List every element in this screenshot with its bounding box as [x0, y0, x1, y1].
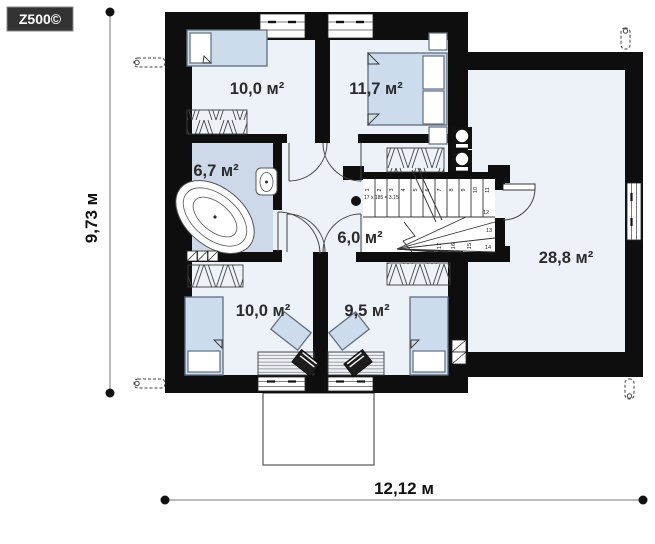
bed-single-bottom-left: [185, 297, 223, 375]
wardrobe-top-left: [187, 110, 247, 134]
stair-step-number: 16: [451, 243, 457, 249]
roof-window-icon: [134, 379, 165, 388]
stair-step-number: 11: [485, 187, 491, 193]
width-dimension-label: 12,12 м: [374, 479, 434, 498]
floor-plan-drawing: 17 x 185 = 3.15 1 2 3 4 5 6 7 8 9 10 11 …: [0, 0, 655, 544]
vent-grid-icon: [187, 251, 218, 261]
stair-step-number: 4: [401, 188, 407, 191]
stair-start-dot: [351, 196, 361, 206]
stair-step-number: 10: [473, 187, 479, 193]
dimension-width: 12,12 м: [161, 479, 648, 505]
stair-step-number: 14: [485, 245, 491, 251]
partition-top-rooms: [315, 40, 330, 143]
room-area-label: 6,7 м²: [193, 162, 239, 180]
z500-logo: Z500©: [7, 7, 73, 31]
room-area-label: 11,7 м²: [349, 80, 403, 98]
height-dimension-label: 9,73 м: [82, 193, 101, 243]
stair-step-number: 6: [425, 188, 431, 191]
wall-hall-top-b: [315, 134, 330, 143]
dimension-height: 9,73 м: [82, 8, 115, 398]
wall-hall-top-a: [192, 134, 287, 143]
stair-step-number: 1: [365, 188, 371, 191]
stair-step-number: 13: [486, 228, 492, 234]
vent-grid-icon: [452, 340, 466, 364]
roof-window-icon: [621, 28, 630, 49]
window-bottom-1: [258, 377, 305, 391]
stair-step-number: 8: [449, 188, 455, 191]
bed-single-top-left: [187, 30, 267, 66]
room-area-label: 9,5 м²: [344, 302, 390, 320]
stair-step-number: 7: [437, 188, 443, 191]
partition-bottom-rooms: [313, 252, 328, 377]
roof-window-icon: [134, 58, 165, 67]
bed-single-bottom-right: [410, 297, 448, 375]
floor-plan-page: 17 x 185 = 3.15 1 2 3 4 5 6 7 8 9 10 11 …: [0, 0, 655, 544]
room-area-label: 10,0 м²: [236, 302, 291, 320]
stair-step-number: 3: [389, 188, 395, 191]
stair-step-number: 2: [377, 188, 383, 191]
wall-annex-top: [448, 52, 643, 70]
logo-text: Z500©: [19, 11, 62, 27]
wardrobe-bottom-left: [188, 265, 243, 287]
window-bottom-2: [328, 377, 373, 391]
stair-step-number: 12: [483, 210, 489, 216]
roof-window-icon: [625, 379, 634, 399]
toilet: [256, 168, 277, 195]
wall-bathroom-bottom: [165, 252, 282, 262]
room-area-label: 6,0 м²: [337, 229, 383, 247]
wall-hall-bottom: [356, 252, 505, 262]
room-area-label: 10,0 м²: [230, 80, 285, 98]
wardrobe-top-right: [387, 148, 444, 172]
stair-step-number: 15: [467, 243, 473, 249]
balcony: [263, 393, 374, 465]
wardrobe-bottom-right: [387, 263, 450, 285]
wall-bottom-main: [165, 375, 468, 393]
stair-annotation: 17 x 185 = 3.15: [364, 195, 399, 201]
wall-stair-top: [356, 172, 505, 179]
stair-step-number: 9: [461, 188, 467, 191]
stair-step-number: 5: [413, 188, 419, 191]
window-top-2: [328, 14, 373, 38]
window-right: [627, 183, 641, 240]
stair-step-number: 17: [437, 243, 443, 249]
wall-annex-bottom: [448, 352, 643, 377]
room-area-label: 28,8 м²: [539, 249, 594, 267]
